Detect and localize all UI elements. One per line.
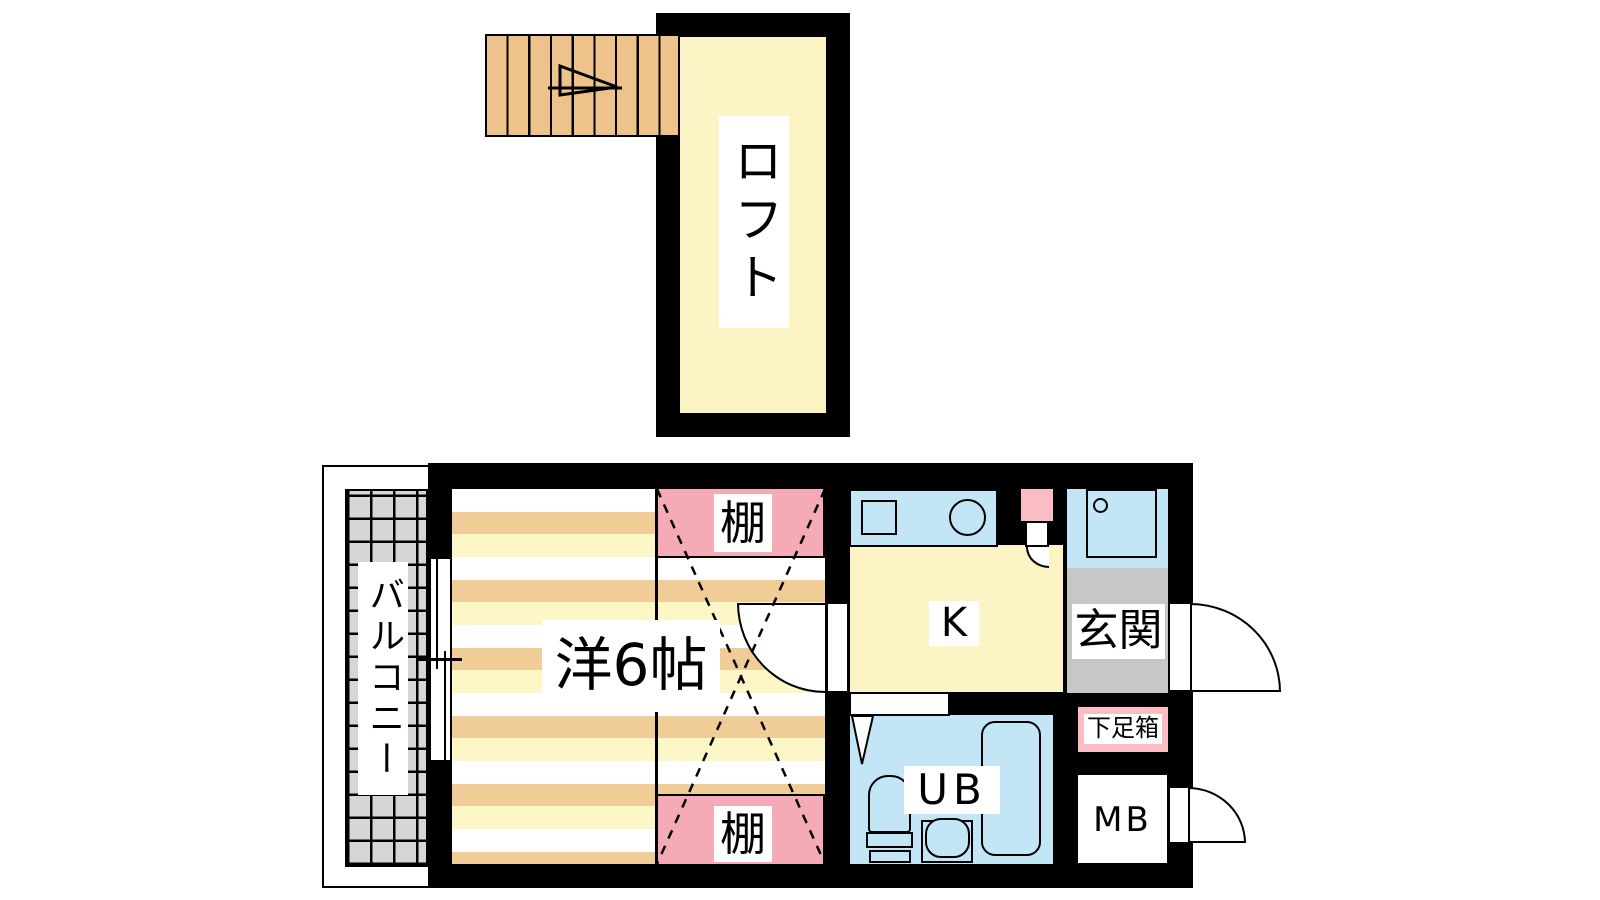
window-pane-line-upper [436, 559, 438, 669]
stove-square [861, 500, 897, 535]
bath-door-triangle [848, 714, 880, 768]
bath-door-leaf [849, 692, 950, 716]
toilet-tank [866, 832, 913, 848]
pan-faucet-circle [1093, 498, 1108, 513]
meter-box-door-swing [1188, 787, 1246, 843]
shoe-box-label: 下足箱 [1084, 714, 1162, 744]
water-heater-box [1021, 489, 1053, 521]
meter-box-door-leaf [1168, 786, 1190, 844]
floor-plan: ロフト [0, 0, 1600, 900]
sink-circle [949, 499, 986, 536]
shelf-top-label: 棚 [714, 494, 772, 552]
loft-label: ロフト [719, 116, 789, 328]
kitchen-label: K [929, 601, 979, 646]
window-pane-line-lower [444, 651, 446, 761]
front-door-leaf [1168, 602, 1192, 692]
stairs-direction-arrow [480, 25, 690, 145]
washbasin-bowl [925, 818, 970, 858]
room-door-leaf [826, 602, 849, 693]
unit-bath-label: UB [904, 766, 1000, 814]
meter-box-label: MB [1080, 802, 1165, 838]
western-room-label: 洋6帖 [542, 620, 720, 712]
heater-door-leaf [1025, 521, 1049, 547]
balcony-label: バルコニー [358, 562, 408, 795]
window-center-tick [416, 658, 462, 661]
shelf-bottom-label: 棚 [714, 806, 772, 862]
entrance-label: 玄関 [1072, 604, 1165, 659]
front-door-swing [1190, 603, 1281, 692]
toilet-base [869, 850, 911, 863]
